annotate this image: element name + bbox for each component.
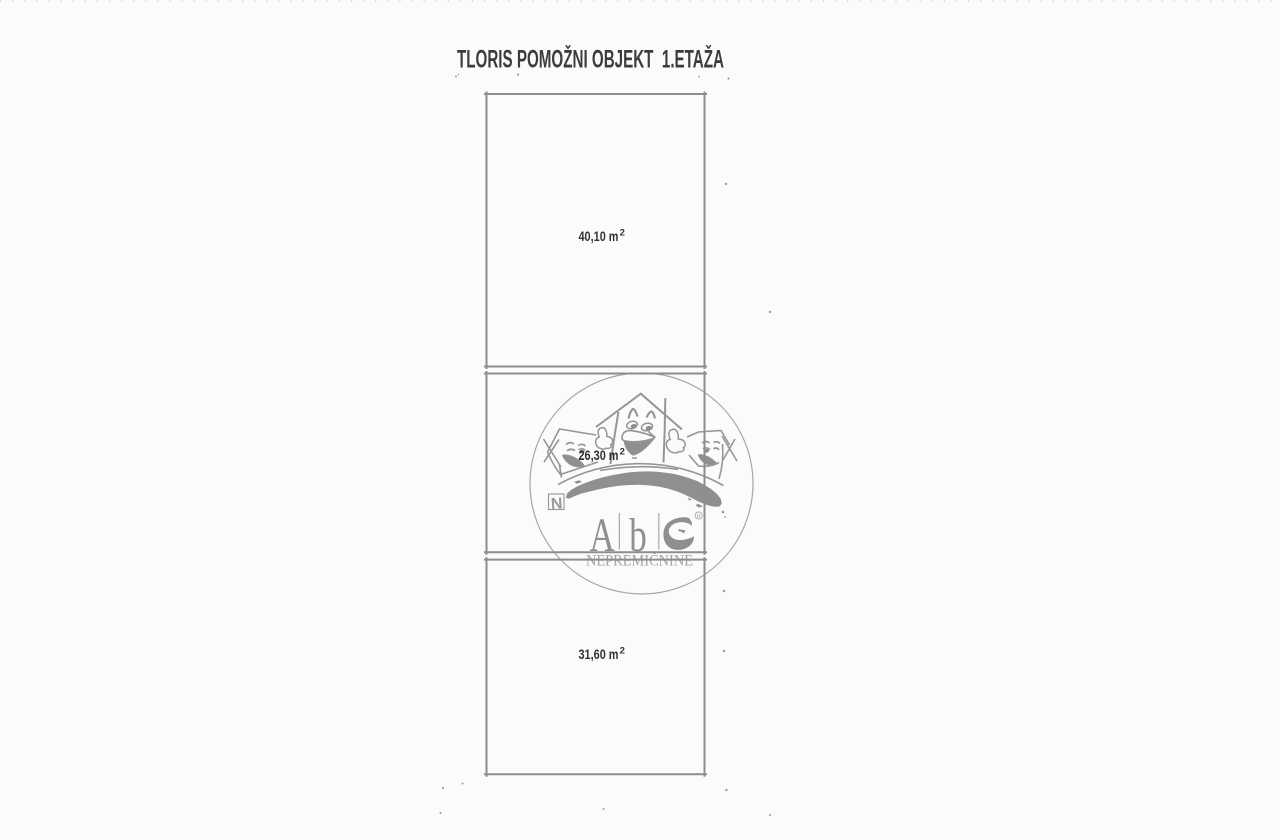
svg-text:TLORIS POMOŽNI OBJEKT 1.ETAŽA: TLORIS POMOŽNI OBJEKT 1.ETAŽA <box>457 44 724 74</box>
svg-text:2: 2 <box>620 646 625 657</box>
svg-text:31,60 m: 31,60 m <box>579 646 619 662</box>
svg-text:40,10 m: 40,10 m <box>579 228 619 244</box>
svg-text:R: R <box>697 514 701 520</box>
svg-text:2: 2 <box>620 228 625 239</box>
svg-text:2: 2 <box>620 447 625 458</box>
svg-text:N: N <box>550 495 563 513</box>
svg-text:26,30 m: 26,30 m <box>579 447 619 463</box>
